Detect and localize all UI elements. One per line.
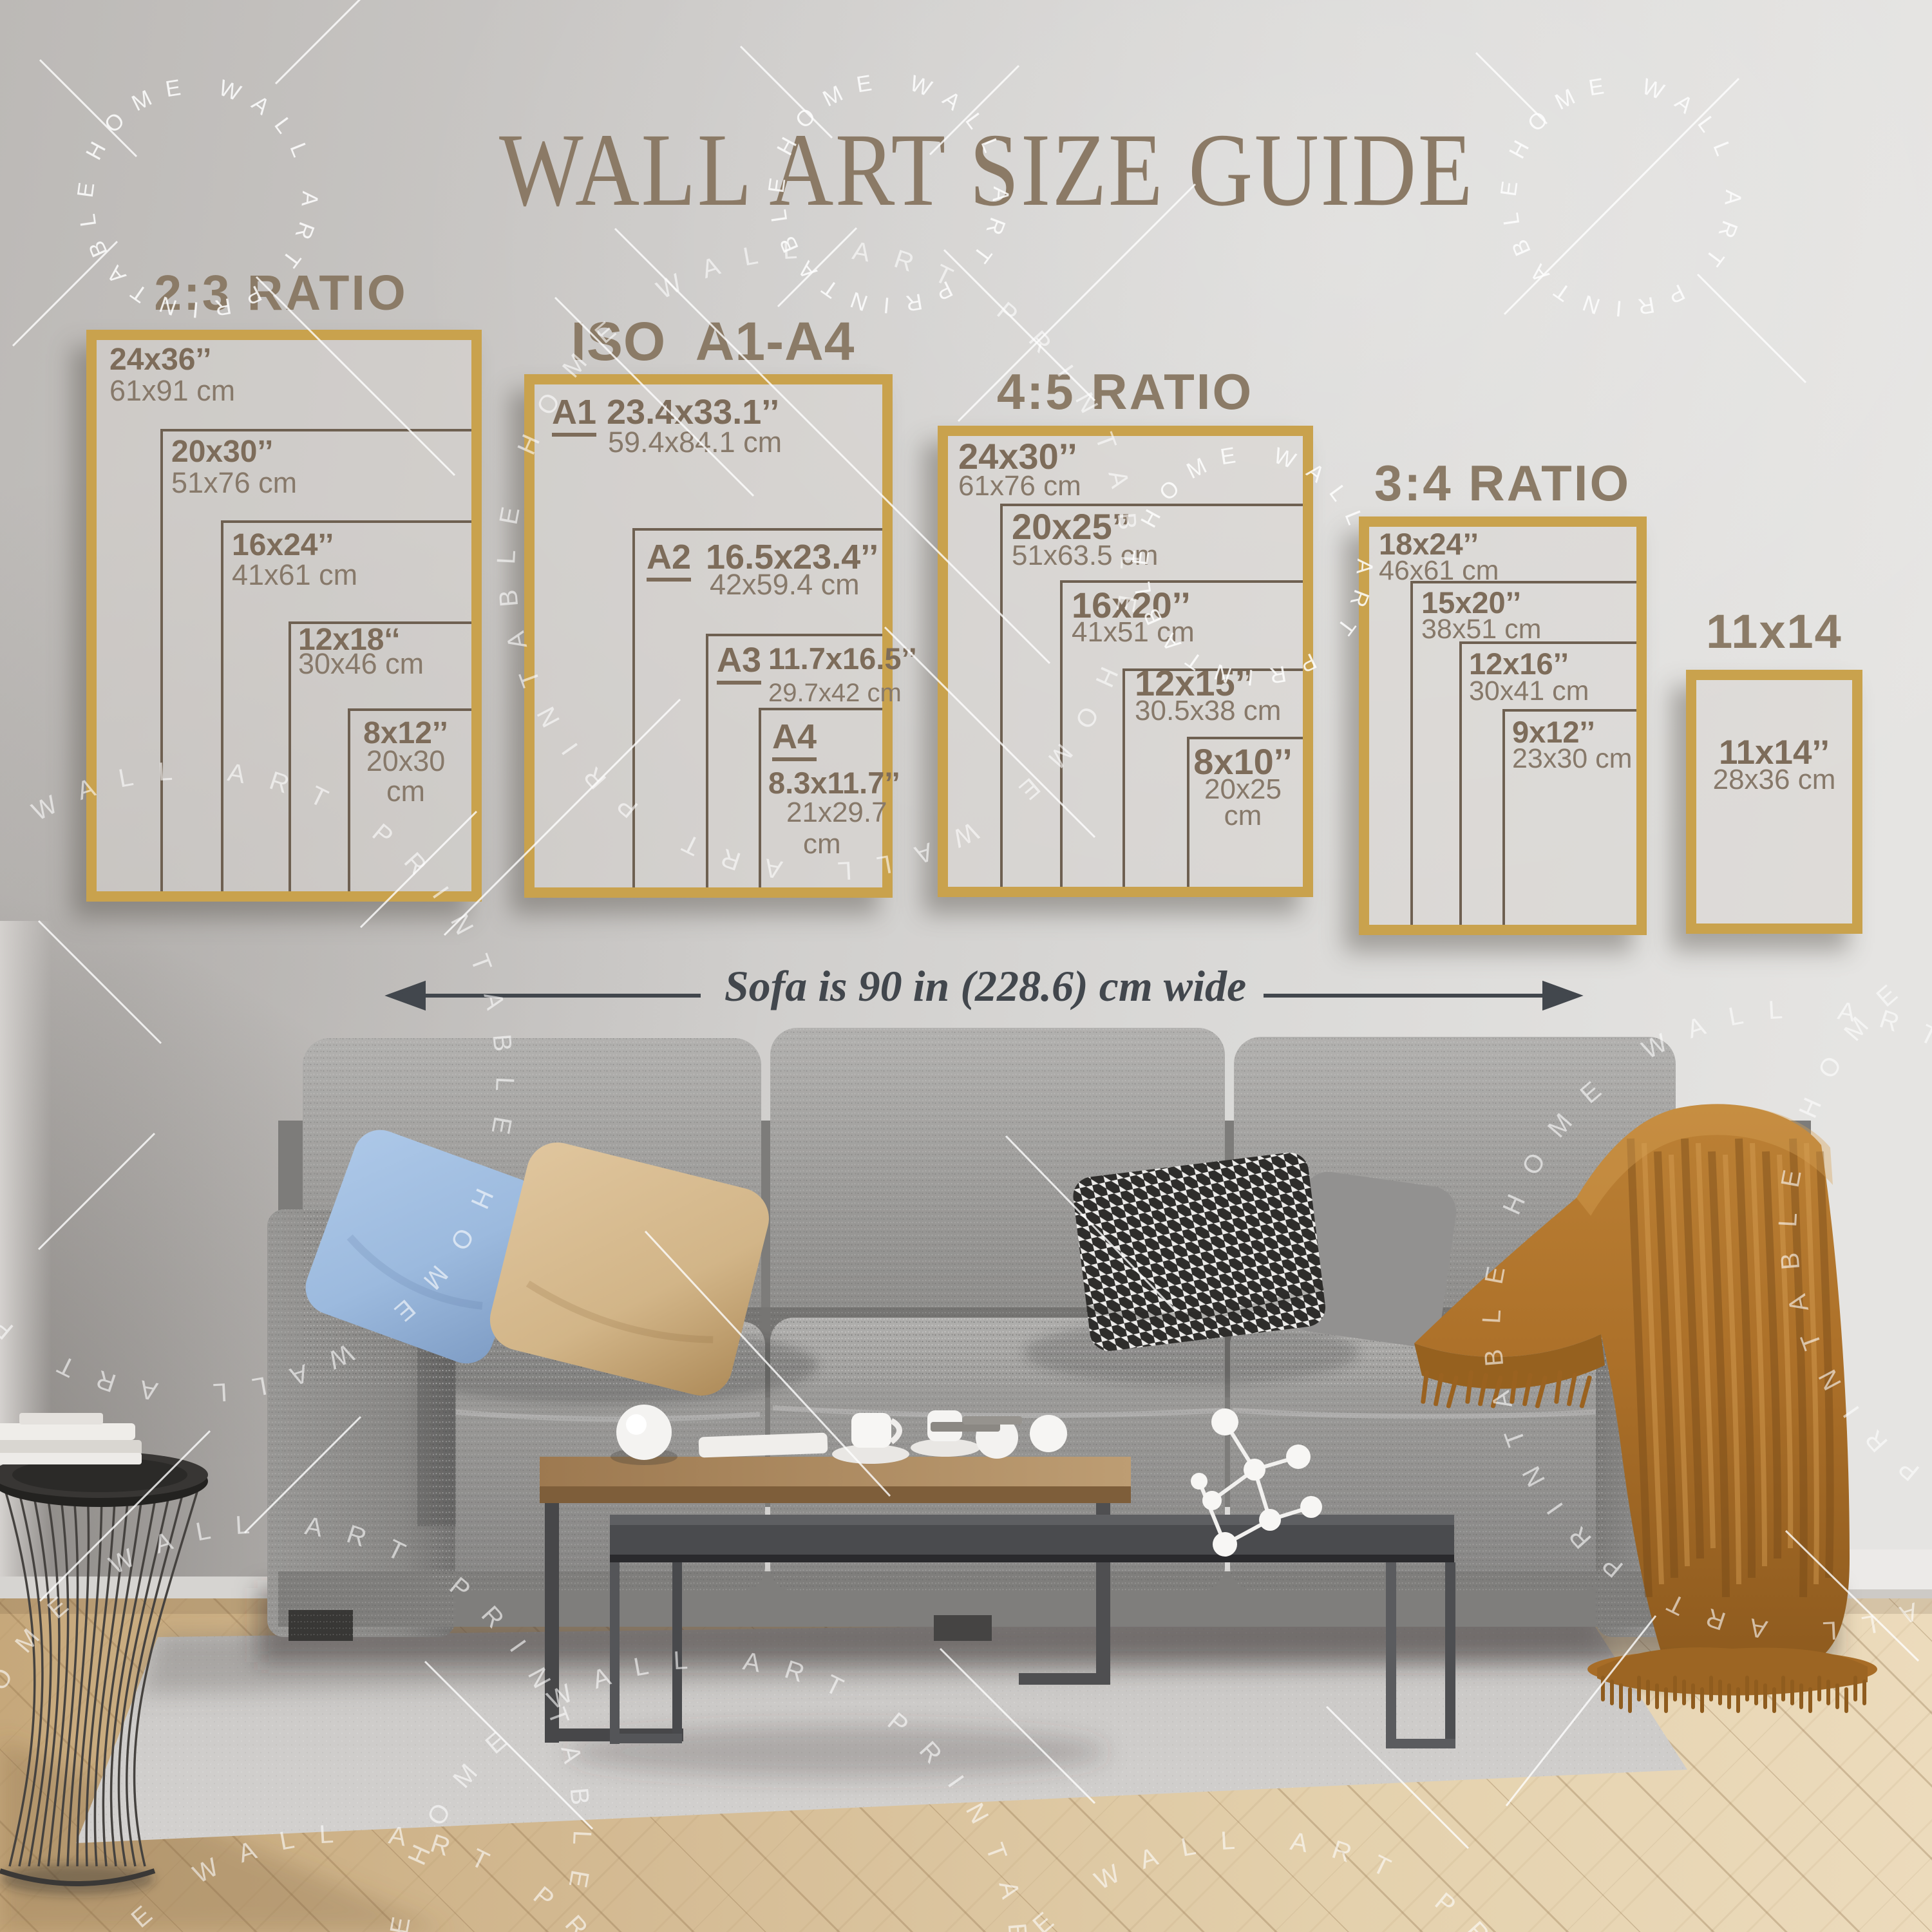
svg-text:HOME WALL ART PRINTABLE: HOME WALL ART PRINTABLE [37, 38, 357, 357]
svg-text:HOME WALL ART PRINTABLE HOME W: HOME WALL ART PRINTABLE HOME WALL ART PR… [290, 1553, 1126, 1932]
svg-text:HOME WALL ART PRINTABLE HOME W: HOME WALL ART PRINTABLE HOME WALL ART PR… [838, 1733, 1673, 1932]
svg-text:HOME WALL ART PRINTABLE HOME W: HOME WALL ART PRINTABLE HOME WALL ART PR… [0, 1727, 772, 1932]
svg-text:HOME WALL ART PRINTABLE HOME W: HOME WALL ART PRINTABLE HOME WALL ART PR… [0, 664, 611, 1499]
svg-text:HOME WALL ART PRINTABLE HOME W: HOME WALL ART PRINTABLE HOME WALL ART PR… [1681, 806, 1932, 1642]
